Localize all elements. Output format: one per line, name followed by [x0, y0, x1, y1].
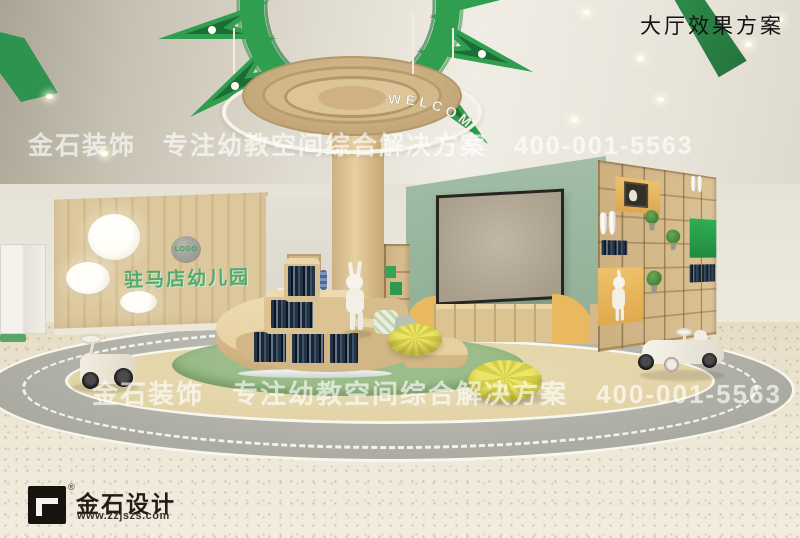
wall-disc: [120, 291, 157, 313]
ceiling-light: [583, 10, 590, 15]
plant-pot: [670, 243, 677, 250]
plant-pot: [648, 223, 656, 231]
brand-logo: ® 金石设计 www.zzjszs.com: [26, 482, 256, 532]
bunny-body: [346, 288, 364, 314]
books: [288, 266, 315, 296]
wall-disc: [66, 262, 110, 294]
logo-badge-label: LOGO: [175, 246, 198, 253]
floor-mat: [0, 334, 26, 342]
picture-frame: [624, 181, 648, 208]
books: [271, 300, 313, 328]
vase: [691, 176, 696, 192]
books: [690, 264, 715, 282]
watermark-line-2: 金石装饰 专注幼教空间综合解决方案 400-001-5563: [92, 374, 782, 411]
entry-door: [0, 244, 46, 334]
vase: [698, 176, 702, 193]
wall-disc: [88, 214, 140, 260]
ceiling-light: [745, 42, 752, 47]
car-wheel: [638, 354, 654, 370]
vase: [600, 212, 607, 234]
ceiling-light: [637, 56, 644, 61]
doll-legs: [621, 307, 624, 321]
page-title: 大厅效果方案: [640, 10, 784, 40]
hanger-rod: [452, 28, 454, 78]
ceiling-light: [657, 97, 664, 102]
brand-mark-notch-inner: [42, 504, 58, 516]
doll-legs: [616, 307, 619, 321]
niche-yellow-doll: [598, 267, 643, 326]
vase: [609, 211, 616, 235]
green-box: [390, 282, 402, 295]
interior-render: LOGO 驻马店幼儿园: [0, 0, 800, 538]
bunny-leg: [350, 312, 355, 330]
plant: [647, 270, 662, 286]
pouf: [388, 324, 442, 356]
bunny-shadow: [342, 330, 372, 338]
brand-mark: [28, 486, 66, 524]
toy-car-right: [634, 328, 734, 376]
books: [254, 332, 286, 362]
hanger-rod: [233, 28, 235, 74]
plant-pot: [650, 285, 658, 294]
registered-mark: ®: [68, 482, 75, 492]
plant: [666, 229, 680, 244]
projection-screen: [436, 189, 564, 306]
green-box: [386, 266, 396, 278]
hanger-rod: [412, 12, 414, 74]
ceiling-light: [46, 94, 53, 99]
decor-spiral: [320, 270, 327, 290]
picture-art: [629, 189, 637, 201]
plant: [645, 210, 659, 225]
books: [292, 332, 324, 363]
kindergarten-name: 驻马店幼儿园: [124, 262, 251, 292]
watermark-line-1: 金石装饰 专注幼教空间综合解决方案 400-001-5563: [28, 126, 694, 162]
ceiling-light: [571, 117, 578, 122]
logo-badge: LOGO: [171, 236, 201, 263]
brand-website: www.zzjszs.com: [77, 510, 170, 522]
cubby-wall: [598, 160, 716, 352]
car-wheel-front: [664, 357, 679, 372]
niche-green: [690, 218, 717, 257]
car-wheel: [702, 353, 717, 368]
bunny-leg: [358, 312, 363, 330]
books: [602, 240, 628, 255]
niche-yellow-top: [616, 176, 661, 214]
storage-bench: [434, 304, 556, 342]
